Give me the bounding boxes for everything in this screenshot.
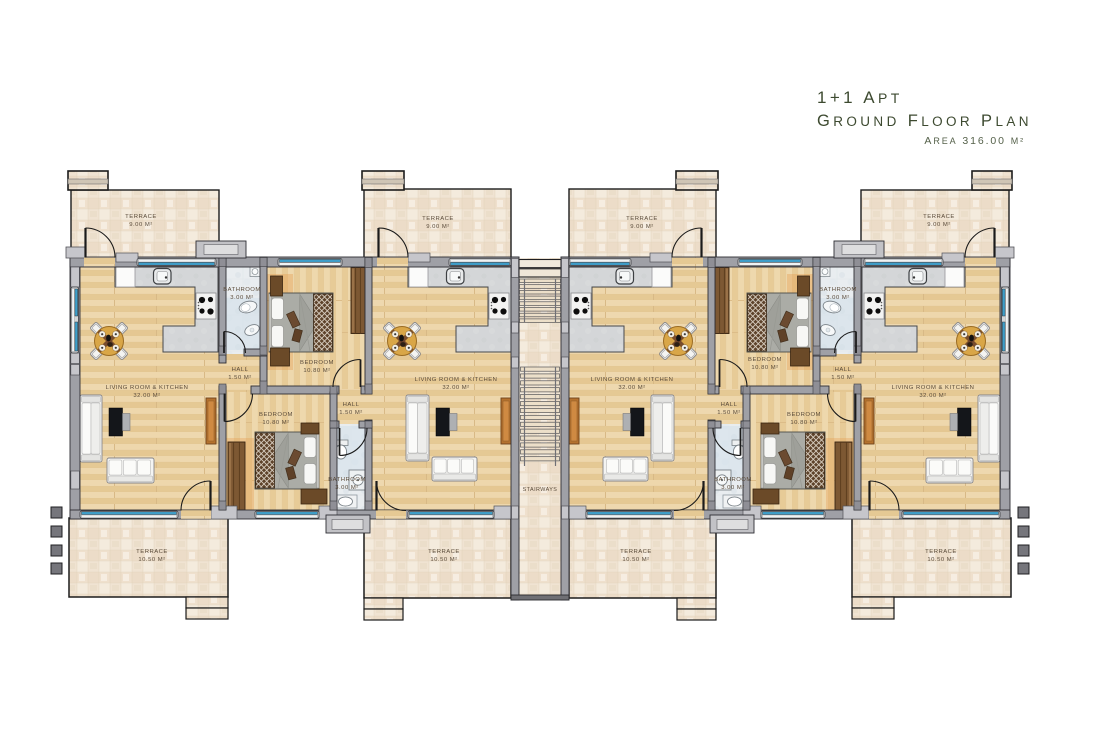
svg-text:TERRACE: TERRACE (136, 549, 168, 555)
svg-text:BEDROOM: BEDROOM (748, 357, 782, 363)
svg-text:1.50 M²: 1.50 M² (717, 410, 740, 416)
svg-text:HALL: HALL (835, 367, 852, 373)
svg-text:TERRACE: TERRACE (422, 216, 454, 222)
svg-text:1+1 APT: 1+1 APT (817, 88, 903, 107)
svg-text:10.80 M²: 10.80 M² (790, 420, 817, 426)
svg-text:9.00 M²: 9.00 M² (426, 224, 449, 230)
svg-text:BATHROOM: BATHROOM (714, 477, 752, 483)
svg-text:3.00 M²: 3.00 M² (335, 485, 358, 491)
svg-text:HALL: HALL (232, 367, 249, 373)
svg-text:BATHROOM: BATHROOM (223, 287, 261, 293)
svg-text:9.00 M²: 9.00 M² (129, 222, 152, 228)
svg-text:3.00 M²: 3.00 M² (230, 295, 253, 301)
svg-text:LIVING ROOM & KITCHEN: LIVING ROOM & KITCHEN (106, 385, 189, 391)
svg-text:10.80 M²: 10.80 M² (303, 368, 330, 374)
svg-text:32.00 M²: 32.00 M² (133, 393, 160, 399)
svg-text:32.00 M²: 32.00 M² (618, 385, 645, 391)
svg-text:3.00 M²: 3.00 M² (721, 485, 744, 491)
svg-text:9.00 M²: 9.00 M² (630, 224, 653, 230)
svg-text:LIVING ROOM & KITCHEN: LIVING ROOM & KITCHEN (415, 377, 498, 383)
svg-text:AREA 316.00 M²: AREA 316.00 M² (924, 135, 1025, 147)
svg-text:TERRACE: TERRACE (125, 214, 157, 220)
svg-text:10.80 M²: 10.80 M² (751, 365, 778, 371)
svg-text:LIVING ROOM & KITCHEN: LIVING ROOM & KITCHEN (892, 385, 975, 391)
svg-text:3.00 M²: 3.00 M² (826, 295, 849, 301)
svg-text:1.50 M²: 1.50 M² (228, 375, 251, 381)
svg-text:LIVING ROOM & KITCHEN: LIVING ROOM & KITCHEN (591, 377, 674, 383)
svg-text:BATHROOM: BATHROOM (819, 287, 857, 293)
svg-text:10.80 M²: 10.80 M² (262, 420, 289, 426)
svg-text:32.00 M²: 32.00 M² (919, 393, 946, 399)
svg-text:1.50 M²: 1.50 M² (339, 410, 362, 416)
svg-text:10.50 M²: 10.50 M² (622, 557, 649, 563)
svg-text:10.50 M²: 10.50 M² (430, 557, 457, 563)
svg-text:HALL: HALL (721, 402, 738, 408)
svg-text:BEDROOM: BEDROOM (259, 412, 293, 418)
svg-text:TERRACE: TERRACE (626, 216, 658, 222)
svg-text:TERRACE: TERRACE (925, 549, 957, 555)
svg-text:32.00 M²: 32.00 M² (442, 385, 469, 391)
svg-text:BATHROOM: BATHROOM (328, 477, 366, 483)
svg-text:BEDROOM: BEDROOM (300, 360, 334, 366)
svg-text:STAIRWAYS: STAIRWAYS (523, 487, 558, 493)
svg-text:9.00 M²: 9.00 M² (927, 222, 950, 228)
svg-text:10.50 M²: 10.50 M² (138, 557, 165, 563)
svg-text:HALL: HALL (343, 402, 360, 408)
svg-text:TERRACE: TERRACE (428, 549, 460, 555)
svg-text:10.50 M²: 10.50 M² (927, 557, 954, 563)
svg-text:BEDROOM: BEDROOM (787, 412, 821, 418)
svg-text:TERRACE: TERRACE (620, 549, 652, 555)
svg-text:1.50 M²: 1.50 M² (831, 375, 854, 381)
svg-text:GROUND FLOOR PLAN: GROUND FLOOR PLAN (817, 112, 1032, 130)
svg-text:TERRACE: TERRACE (923, 214, 955, 220)
